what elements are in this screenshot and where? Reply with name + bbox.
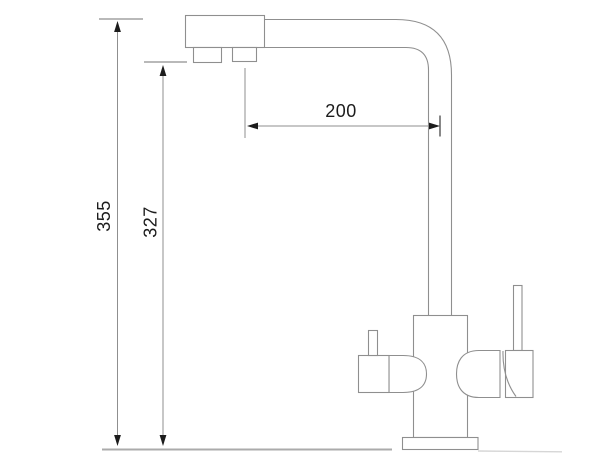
dimension-overall-height: 355 xyxy=(94,19,143,446)
dimension-label-spout-reach: 200 xyxy=(325,101,357,121)
left-handle-lever xyxy=(369,331,378,356)
drawing-canvas: 355 327 200 xyxy=(0,0,600,464)
dimension-label-overall-height: 355 xyxy=(94,200,114,232)
base-flange xyxy=(403,438,479,450)
arrowhead-left-icon xyxy=(247,123,258,130)
countertop-line xyxy=(102,450,562,452)
countertop-line-right xyxy=(478,451,562,452)
spout-head xyxy=(186,16,265,48)
arrowhead-down-icon xyxy=(114,435,121,446)
faucet-outline xyxy=(186,16,534,450)
right-handle-body xyxy=(506,351,534,398)
spout-tube-outer-contour xyxy=(265,20,452,316)
left-valve-joint xyxy=(389,356,427,393)
spout-tube-inner-contour xyxy=(265,48,429,316)
aerator-right xyxy=(233,48,257,62)
arrowhead-up-icon xyxy=(114,21,121,32)
right-handle-lever xyxy=(514,286,523,351)
dimension-spout-outlet-height: 327 xyxy=(141,62,188,446)
arrowhead-right-icon xyxy=(429,123,440,130)
faucet-dimension-drawing: 355 327 200 xyxy=(0,0,600,464)
dimension-label-spout-outlet-height: 327 xyxy=(141,206,161,238)
arrowhead-up-icon xyxy=(160,65,167,76)
aerator-left xyxy=(194,48,222,63)
left-handle-body xyxy=(359,356,390,393)
dimension-spout-reach: 200 xyxy=(245,68,440,138)
arrowhead-down-icon xyxy=(160,435,167,446)
right-valve-joint xyxy=(457,351,501,398)
